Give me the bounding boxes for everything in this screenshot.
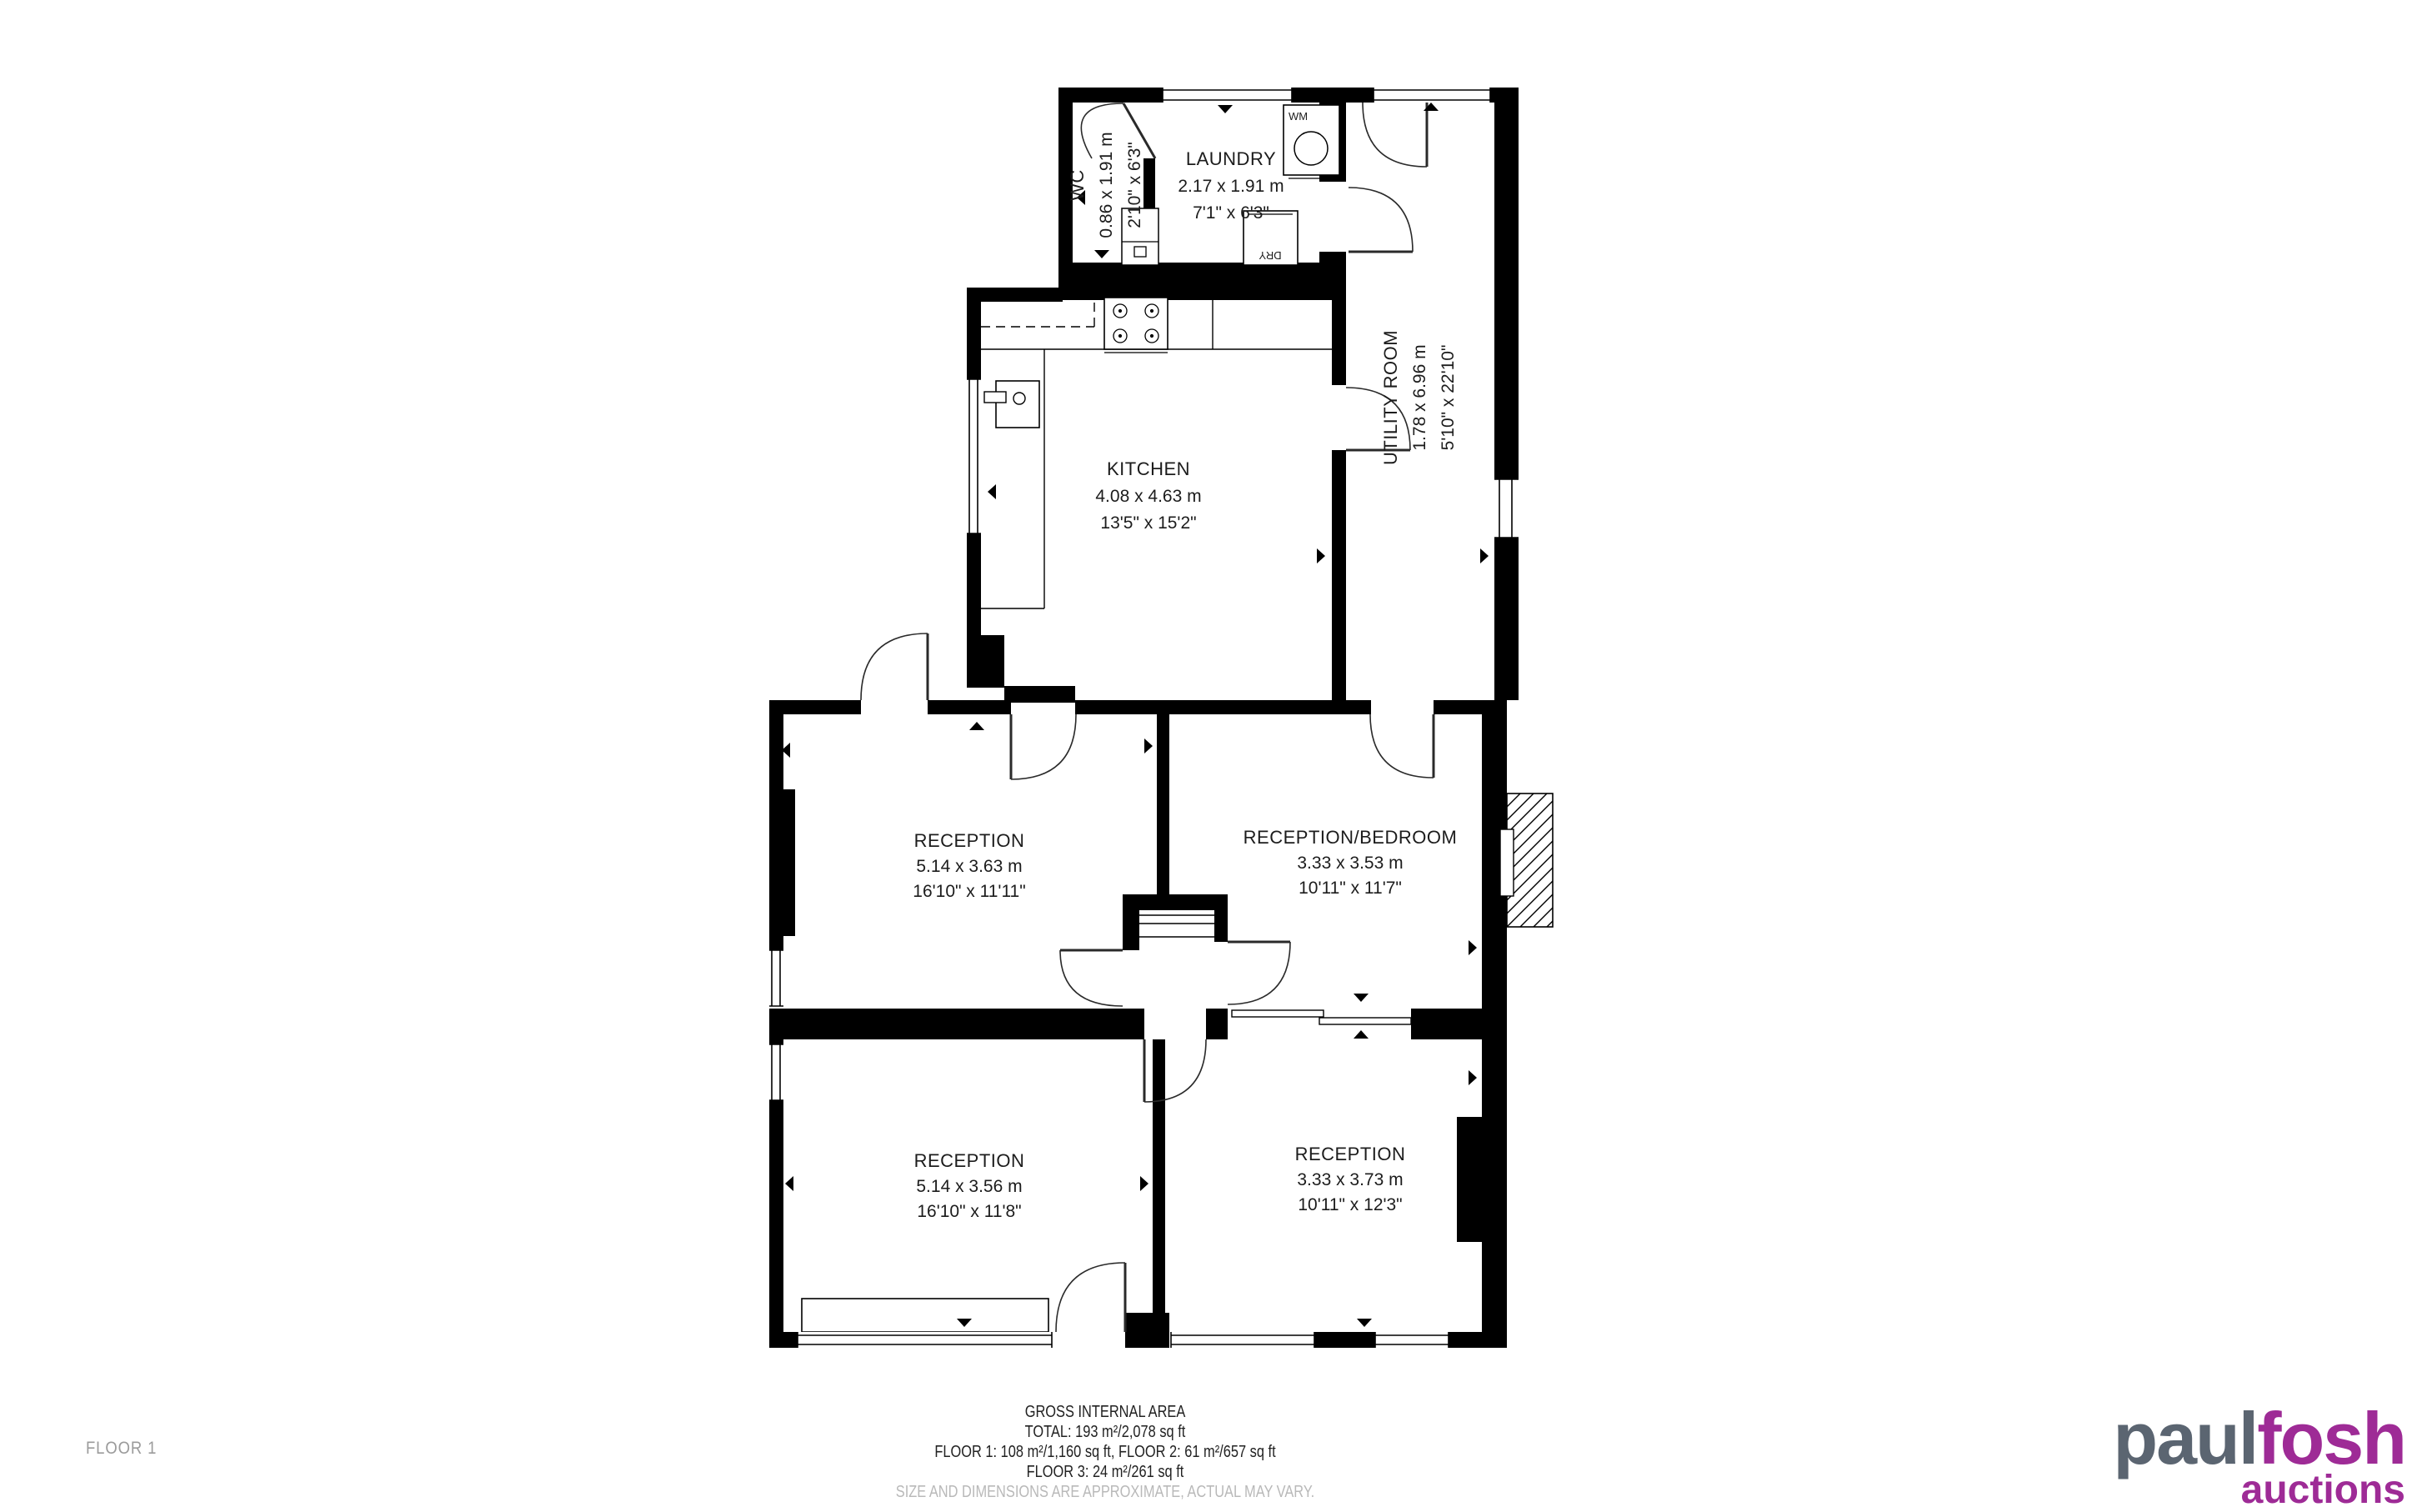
room-name: RECEPTION/BEDROOM (1244, 827, 1458, 848)
window-reception-mid-left (769, 950, 783, 1006)
window-reception-br-bottom-2 (1375, 1332, 1449, 1348)
room-name: RECEPTION (1295, 1144, 1406, 1164)
footer-total: TOTAL: 193 m²/2,078 sq ft (896, 1422, 1314, 1442)
stairs (1139, 915, 1214, 937)
footer-title: GROSS INTERNAL AREA (896, 1402, 1314, 1422)
room-wc: WC 0.86 x 1.91 m 2'10" x 6'3" (1067, 132, 1144, 238)
room-metric: 5.14 x 3.63 m (916, 857, 1022, 876)
washing-machine-icon: WM (1284, 105, 1339, 178)
room-metric: 4.08 x 4.63 m (1095, 487, 1201, 506)
door-laundry-utility (1349, 188, 1413, 252)
room-imperial: 5'10" x 22'10" (1439, 345, 1458, 451)
floor-label: FLOOR 1 (86, 1439, 157, 1459)
walls (769, 88, 1519, 1348)
chimney-breast (1500, 794, 1553, 927)
window-laundry-top (1163, 88, 1292, 103)
dryer-label: DRY (1259, 249, 1282, 262)
room-metric: 0.86 x 1.91 m (1097, 132, 1116, 238)
paulfosh-logo: paulfosh auctions (2113, 1402, 2405, 1510)
room-reception-bottom-right: RECEPTION 3.33 x 3.73 m 10'11" x 12'3" (1295, 1144, 1406, 1214)
room-imperial: 2'10" x 6'3" (1125, 142, 1144, 228)
logo-paul: paul (2113, 1397, 2257, 1479)
door-utility-bedroom (1370, 714, 1434, 778)
door-utility-front (1363, 103, 1427, 167)
room-name: WC (1067, 169, 1088, 201)
stove-icon (1104, 298, 1168, 353)
room-imperial: 10'11" x 11'7" (1299, 879, 1402, 898)
floor-plan: WM DRY WC 0.86 x 1.91 m (0, 0, 2412, 1507)
footer-disclaimer: SIZE AND DIMENSIONS ARE APPROXIMATE, ACT… (896, 1482, 1314, 1502)
gross-internal-area-block: GROSS INTERNAL AREA TOTAL: 193 m²/2,078 … (896, 1402, 1314, 1502)
door-reception-bl-front (1056, 1263, 1125, 1332)
window-kitchen-left (967, 379, 981, 533)
window-reception-br-bottom-1 (1171, 1332, 1314, 1348)
room-imperial: 16'10" x 11'11" (913, 882, 1025, 901)
bay-window-sill (802, 1299, 1048, 1332)
sliding-door (1232, 1010, 1411, 1024)
window-reception-bl-left (769, 1044, 783, 1100)
room-imperial: 7'1" x 6'3" (1193, 203, 1269, 223)
door-hall-bedroom (1228, 942, 1290, 1004)
window-reception-bl-bottom (798, 1332, 1052, 1348)
footer-floor-3: FLOOR 3: 24 m²/261 sq ft (896, 1462, 1314, 1482)
door-hall-reception-mid (1060, 950, 1123, 1006)
room-utility: UTILITY ROOM 1.78 x 6.96 m 5'10" x 22'10… (1380, 330, 1458, 465)
room-imperial: 13'5" x 15'2" (1100, 513, 1196, 533)
room-reception-middle: RECEPTION 5.14 x 3.63 m 16'10" x 11'11" (913, 830, 1025, 901)
room-metric: 5.14 x 3.56 m (916, 1177, 1022, 1196)
room-metric: 3.33 x 3.53 m (1297, 854, 1403, 873)
room-name: LAUNDRY (1186, 148, 1276, 169)
logo-wordmark: paulfosh (2113, 1402, 2405, 1475)
sink-icon (984, 381, 1039, 428)
room-kitchen: KITCHEN 4.08 x 4.63 m 13'5" x 15'2" (1095, 458, 1201, 533)
room-name: KITCHEN (1107, 458, 1190, 479)
room-name: UTILITY ROOM (1380, 330, 1401, 465)
room-metric: 3.33 x 3.73 m (1297, 1170, 1403, 1189)
door-kitchen-reception (1011, 714, 1076, 779)
room-laundry: LAUNDRY 2.17 x 1.91 m 7'1" x 6'3" (1178, 148, 1284, 223)
room-metric: 2.17 x 1.91 m (1178, 177, 1284, 196)
footer-floors-1-2: FLOOR 1: 108 m²/1,160 sq ft, FLOOR 2: 61… (896, 1442, 1314, 1462)
washing-machine-label: WM (1289, 110, 1308, 123)
room-name: RECEPTION (914, 830, 1025, 851)
room-metric: 1.78 x 6.96 m (1410, 344, 1429, 450)
room-reception-bottom-left: RECEPTION 5.14 x 3.56 m 16'10" x 11'8" (914, 1150, 1025, 1221)
room-reception-bedroom: RECEPTION/BEDROOM 3.33 x 3.53 m 10'11" x… (1244, 827, 1458, 898)
room-imperial: 10'11" x 12'3" (1298, 1195, 1402, 1214)
room-imperial: 16'10" x 11'8" (917, 1202, 1021, 1221)
door-side-entrance (861, 633, 928, 700)
room-name: RECEPTION (914, 1150, 1025, 1171)
window-utility-right (1494, 479, 1519, 538)
window-utility-top (1374, 88, 1490, 103)
